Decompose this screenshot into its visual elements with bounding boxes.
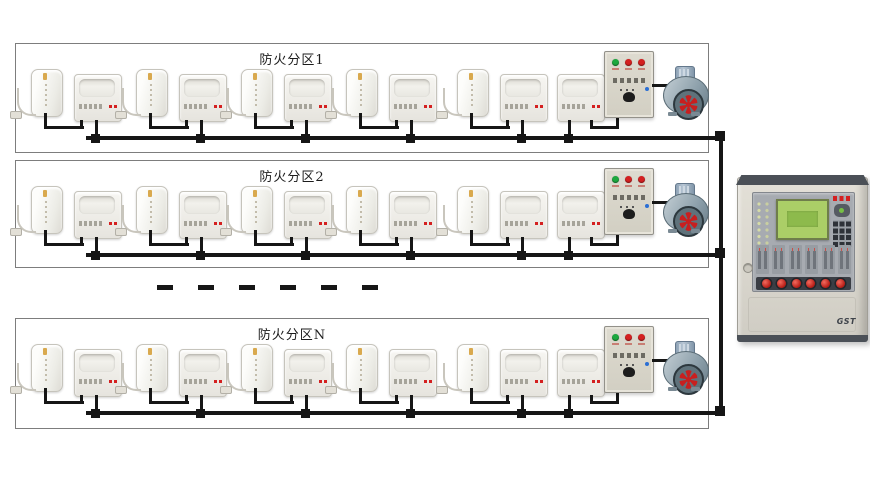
module-led-red xyxy=(319,380,322,383)
red-button xyxy=(821,279,830,288)
module-window xyxy=(184,196,220,214)
module-window xyxy=(184,354,220,372)
plug-icon xyxy=(436,228,448,236)
plug-icon xyxy=(325,386,337,394)
wire-segment xyxy=(470,401,510,404)
wire-segment xyxy=(290,120,293,129)
detector-module-group xyxy=(241,183,333,261)
module-label-strip xyxy=(562,379,586,384)
control-module-device xyxy=(500,349,548,397)
input-module-device xyxy=(31,69,63,117)
red-button xyxy=(777,279,786,288)
module-led-red xyxy=(592,222,595,225)
wire-segment xyxy=(290,237,293,246)
module-label-strip xyxy=(505,104,529,109)
power-led-green xyxy=(612,176,619,183)
plug-icon xyxy=(115,386,127,394)
wire-segment xyxy=(149,243,189,246)
module-window xyxy=(289,354,325,372)
wire-segment xyxy=(470,126,510,129)
module-label-strip xyxy=(79,379,103,384)
detector-module-group xyxy=(31,66,123,144)
module-label-strip xyxy=(79,221,103,226)
detector-module-group xyxy=(136,341,228,419)
control-module-device xyxy=(557,349,605,397)
wire-segment xyxy=(506,237,509,246)
input-module-device xyxy=(346,344,378,392)
fan-foot xyxy=(691,229,700,233)
control-module-device xyxy=(389,191,437,239)
wire-segment xyxy=(506,120,509,129)
lcd-text-block xyxy=(787,211,818,227)
module-led-red xyxy=(429,222,432,225)
input-module-device xyxy=(346,186,378,234)
wire-segment xyxy=(359,243,399,246)
module-window xyxy=(289,79,325,97)
module-label-strip xyxy=(184,221,208,226)
wire-segment xyxy=(590,401,619,404)
detector-module-group xyxy=(31,341,123,419)
bus-wire xyxy=(86,411,723,415)
bus-wire xyxy=(86,253,723,257)
detector-module-group xyxy=(346,66,438,144)
module-led-red xyxy=(214,222,217,225)
fan-control-cabinet xyxy=(604,326,654,393)
module-led-red xyxy=(535,222,538,225)
module-window xyxy=(562,196,598,214)
wire-segment xyxy=(290,395,293,404)
plug-icon xyxy=(220,386,232,394)
red-button xyxy=(792,279,801,288)
module-led-red xyxy=(319,105,322,108)
red-button xyxy=(806,279,815,288)
wire-segment xyxy=(149,126,189,129)
module-led-red xyxy=(429,105,432,108)
module-led-red xyxy=(592,380,595,383)
detector-module-group xyxy=(346,183,438,261)
module-led-red xyxy=(429,380,432,383)
input-module-device xyxy=(31,344,63,392)
wire-segment xyxy=(359,126,399,129)
module-led-red xyxy=(324,222,327,225)
panel-top-edge xyxy=(736,175,869,185)
nav-cluster xyxy=(834,204,850,217)
control-module-device xyxy=(557,74,605,122)
detector-module-group xyxy=(241,341,333,419)
wire-segment xyxy=(590,126,619,129)
module-label-strip xyxy=(184,104,208,109)
alarm-led-red xyxy=(625,334,632,341)
input-module-device xyxy=(457,344,489,392)
panel-inner-face xyxy=(752,192,855,292)
wire-segment xyxy=(149,401,189,404)
detector-module-group xyxy=(457,341,549,419)
control-module-device xyxy=(500,191,548,239)
indicator-slot-group xyxy=(805,245,818,274)
wire-segment xyxy=(470,243,510,246)
indicator-slot-group xyxy=(772,245,785,274)
detector-module-group xyxy=(457,183,549,261)
alarm-led-red xyxy=(638,59,645,66)
exhaust-fan xyxy=(661,341,709,391)
exhaust-fan xyxy=(661,66,709,116)
fan-housing xyxy=(663,193,709,232)
module-window xyxy=(505,79,541,97)
module-led-red xyxy=(540,105,543,108)
wire-segment xyxy=(395,237,398,246)
module-label-strip xyxy=(394,104,418,109)
module-led-red xyxy=(535,105,538,108)
plug-icon xyxy=(325,111,337,119)
control-module-device xyxy=(389,349,437,397)
fan-foot xyxy=(668,229,677,233)
fire-zone-box: 防火分区N xyxy=(15,318,709,429)
module-label-strip xyxy=(289,104,313,109)
input-module-device xyxy=(346,69,378,117)
wire-segment xyxy=(185,237,188,246)
module-led-red xyxy=(597,105,600,108)
numeric-keypad xyxy=(833,220,852,247)
module-window xyxy=(505,354,541,372)
wire-segment xyxy=(80,395,83,404)
fire-alarm-controller: GST xyxy=(737,177,868,342)
module-window xyxy=(79,354,115,372)
plug-icon xyxy=(10,228,22,236)
module-led-red xyxy=(114,380,117,383)
plug-icon xyxy=(10,386,22,394)
control-knob xyxy=(623,209,635,219)
wire-segment xyxy=(254,243,294,246)
red-button xyxy=(836,279,845,288)
module-label-strip xyxy=(562,221,586,226)
module-led-red xyxy=(592,105,595,108)
wire-segment xyxy=(395,395,398,404)
fan-foot xyxy=(668,387,677,391)
module-led-red xyxy=(540,222,543,225)
input-module-device xyxy=(31,186,63,234)
input-module-device xyxy=(136,186,168,234)
module-led-red xyxy=(597,222,600,225)
bus-wire xyxy=(86,136,723,140)
indicator-dot-blue xyxy=(645,87,649,91)
fan-foot xyxy=(691,387,700,391)
wire-segment xyxy=(395,120,398,129)
module-window xyxy=(184,79,220,97)
fire-alarm-system-diagram: 防火分区1 xyxy=(0,0,870,479)
junction-dot xyxy=(715,406,725,416)
module-led-red xyxy=(109,105,112,108)
module-label-strip xyxy=(289,221,313,226)
panel-door-outline xyxy=(748,297,856,332)
cabinet-label-strip xyxy=(613,353,645,358)
indicator-slot-group xyxy=(789,245,802,274)
module-led-red xyxy=(424,380,427,383)
input-module-device xyxy=(457,186,489,234)
input-module-device xyxy=(457,69,489,117)
module-label-strip xyxy=(562,104,586,109)
wire-segment xyxy=(44,126,84,129)
plug-icon xyxy=(115,228,127,236)
wire-segment xyxy=(44,401,84,404)
exhaust-fan xyxy=(661,183,709,233)
panel-bottom-edge xyxy=(737,335,868,342)
module-window xyxy=(562,354,598,372)
alarm-led-red xyxy=(638,176,645,183)
control-knob xyxy=(623,367,635,377)
plug-icon xyxy=(220,228,232,236)
cabinet-label-strip xyxy=(613,195,645,200)
fan-housing xyxy=(663,351,709,390)
wire-segment xyxy=(44,243,84,246)
plug-icon xyxy=(115,111,127,119)
detector-module-group xyxy=(346,341,438,419)
fan-housing xyxy=(663,76,709,115)
module-window xyxy=(394,196,430,214)
module-led-red xyxy=(535,380,538,383)
module-window xyxy=(394,79,430,97)
input-module-device xyxy=(241,186,273,234)
power-led-green xyxy=(612,334,619,341)
module-window xyxy=(79,196,115,214)
plug-icon xyxy=(220,111,232,119)
indicator-slot-group xyxy=(838,245,851,274)
wire-segment xyxy=(590,243,619,246)
cabinet-label-strip xyxy=(613,78,645,83)
module-window xyxy=(562,79,598,97)
function-keys-red xyxy=(833,196,851,201)
detector-module-group xyxy=(31,183,123,261)
control-module-device xyxy=(389,74,437,122)
module-led-red xyxy=(597,380,600,383)
indicator-dot-blue xyxy=(645,362,649,366)
detector-module-group xyxy=(136,66,228,144)
wire-segment xyxy=(254,401,294,404)
control-module-device xyxy=(500,74,548,122)
zone-led-columns xyxy=(756,201,773,251)
module-led-red xyxy=(114,222,117,225)
wire-segment xyxy=(506,395,509,404)
fan-foot xyxy=(691,112,700,116)
module-led-red xyxy=(214,105,217,108)
module-label-strip xyxy=(79,104,103,109)
fan-control-cabinet xyxy=(604,168,654,235)
continuation-dashes xyxy=(157,285,379,290)
module-label-strip xyxy=(184,379,208,384)
indicator-slot-group xyxy=(756,245,769,274)
plug-icon xyxy=(436,111,448,119)
indicator-dot-blue xyxy=(645,204,649,208)
module-led-red xyxy=(324,105,327,108)
wire-segment xyxy=(80,237,83,246)
gst-logo: GST xyxy=(837,317,856,326)
input-module-device xyxy=(241,69,273,117)
detector-module-group xyxy=(457,66,549,144)
module-label-strip xyxy=(394,221,418,226)
wire-segment xyxy=(185,395,188,404)
power-led-green xyxy=(612,59,619,66)
fan-foot xyxy=(668,112,677,116)
module-led-red xyxy=(219,105,222,108)
module-window xyxy=(505,196,541,214)
module-window xyxy=(289,196,325,214)
wire-segment xyxy=(254,126,294,129)
junction-dot xyxy=(715,131,725,141)
red-button xyxy=(762,279,771,288)
module-led-red xyxy=(319,222,322,225)
module-led-red xyxy=(540,380,543,383)
module-window xyxy=(394,354,430,372)
module-led-red xyxy=(109,222,112,225)
wire-segment xyxy=(185,120,188,129)
lcd-screen xyxy=(776,199,829,240)
indicator-slot-group xyxy=(822,245,835,274)
alarm-led-red xyxy=(625,176,632,183)
manual-buttons-row xyxy=(756,277,851,290)
module-led-red xyxy=(214,380,217,383)
input-module-device xyxy=(136,344,168,392)
control-module-device xyxy=(557,191,605,239)
panel-lock xyxy=(743,263,753,273)
module-label-strip xyxy=(505,221,529,226)
control-knob xyxy=(623,92,635,102)
detector-module-group xyxy=(136,183,228,261)
input-module-device xyxy=(241,344,273,392)
indicator-section xyxy=(756,245,851,274)
trunk-wire xyxy=(719,135,723,414)
module-led-red xyxy=(324,380,327,383)
fire-zone-box: 防火分区1 xyxy=(15,43,709,153)
wire-segment xyxy=(359,401,399,404)
plug-icon xyxy=(10,111,22,119)
module-led-red xyxy=(109,380,112,383)
module-led-red xyxy=(114,105,117,108)
module-led-red xyxy=(219,380,222,383)
junction-dot xyxy=(715,248,725,258)
module-label-strip xyxy=(289,379,313,384)
input-module-device xyxy=(136,69,168,117)
fire-zone-box: 防火分区2 xyxy=(15,160,709,268)
alarm-led-red xyxy=(625,59,632,66)
plug-icon xyxy=(325,228,337,236)
alarm-led-red xyxy=(638,334,645,341)
module-led-red xyxy=(424,105,427,108)
module-led-red xyxy=(424,222,427,225)
detector-module-group xyxy=(241,66,333,144)
plug-icon xyxy=(436,386,448,394)
wire-segment xyxy=(80,120,83,129)
fan-control-cabinet xyxy=(604,51,654,118)
module-window xyxy=(79,79,115,97)
module-label-strip xyxy=(394,379,418,384)
module-led-red xyxy=(219,222,222,225)
module-label-strip xyxy=(505,379,529,384)
